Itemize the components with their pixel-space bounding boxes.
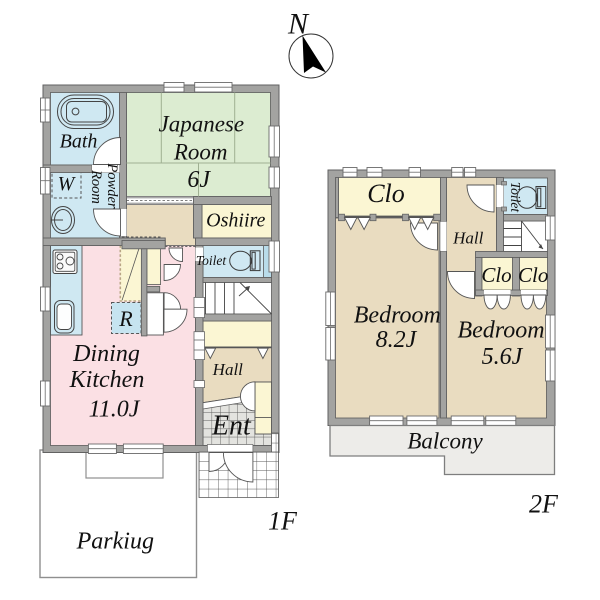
svg-text:Oshiire: Oshiire xyxy=(206,210,265,232)
svg-text:Ent: Ent xyxy=(211,411,252,442)
svg-text:8.2J: 8.2J xyxy=(376,327,418,353)
svg-text:Toilet: Toilet xyxy=(196,253,228,268)
svg-text:Balcony: Balcony xyxy=(407,429,483,454)
svg-text:Dining: Dining xyxy=(72,341,140,367)
svg-text:Bath: Bath xyxy=(60,131,98,153)
svg-text:5.6J: 5.6J xyxy=(482,344,524,370)
svg-text:Hall: Hall xyxy=(452,229,484,248)
svg-text:Clo: Clo xyxy=(518,263,548,287)
svg-text:Hall: Hall xyxy=(212,360,244,379)
svg-text:Room: Room xyxy=(173,140,228,165)
svg-text:Kitchen: Kitchen xyxy=(69,367,145,393)
svg-text:Parkiug: Parkiug xyxy=(76,529,154,555)
svg-text:Japanese: Japanese xyxy=(159,111,245,136)
svg-text:Clo: Clo xyxy=(481,263,511,287)
svg-text:11.0J: 11.0J xyxy=(89,397,141,423)
svg-text:2F: 2F xyxy=(529,490,559,519)
svg-text:Clo: Clo xyxy=(367,179,405,208)
svg-text:Bedroom: Bedroom xyxy=(457,318,544,344)
svg-text:N: N xyxy=(287,8,310,41)
svg-text:Toilet: Toilet xyxy=(508,182,523,214)
svg-text:Powder: Powder xyxy=(104,162,120,208)
svg-text:Room: Room xyxy=(88,169,104,204)
svg-text:R: R xyxy=(118,306,133,331)
svg-text:W: W xyxy=(58,173,77,195)
svg-text:Bedroom: Bedroom xyxy=(354,303,441,329)
svg-text:6J: 6J xyxy=(187,167,211,193)
svg-text:1F: 1F xyxy=(268,507,298,536)
